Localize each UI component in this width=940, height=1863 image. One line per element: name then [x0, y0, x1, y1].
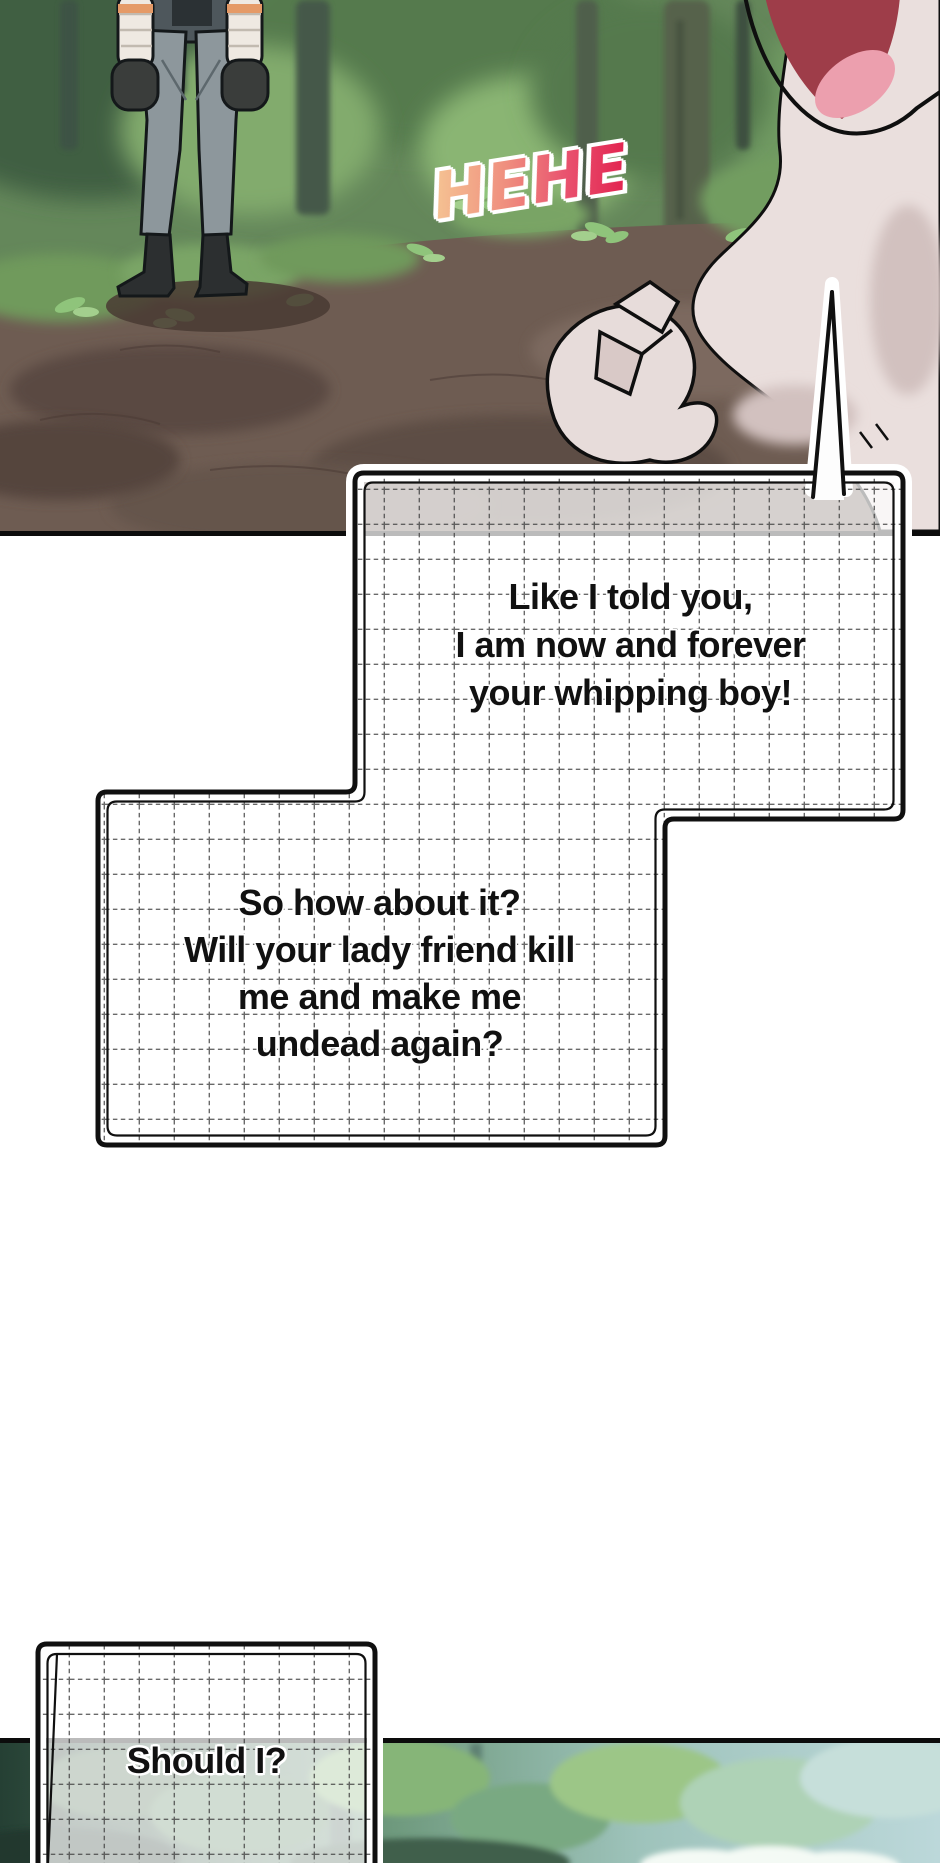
dialogue-bubble-1: Like I told you, I am now and forever yo… [368, 573, 893, 717]
dialogue-bubble-3: Should I? [38, 1737, 375, 1785]
dialogue-line: your whipping boy! [368, 669, 893, 717]
dialogue-line: I am now and forever [368, 621, 893, 669]
dialogue-line: me and make me [102, 973, 657, 1020]
dialogue-line: So how about it? [102, 879, 657, 926]
top-artwork-panel: HEHE [0, 0, 940, 536]
dialogue-bubble-2: So how about it? Will your lady friend k… [102, 879, 657, 1067]
dialogue-line: undead again? [102, 1020, 657, 1067]
dialogue-line: Will your lady friend kill [102, 926, 657, 973]
dialogue-line: Like I told you, [368, 573, 893, 621]
forest-scene-art [0, 0, 940, 531]
comic-page: HEHE [0, 0, 940, 1863]
dialogue-line: Should I? [38, 1737, 375, 1785]
